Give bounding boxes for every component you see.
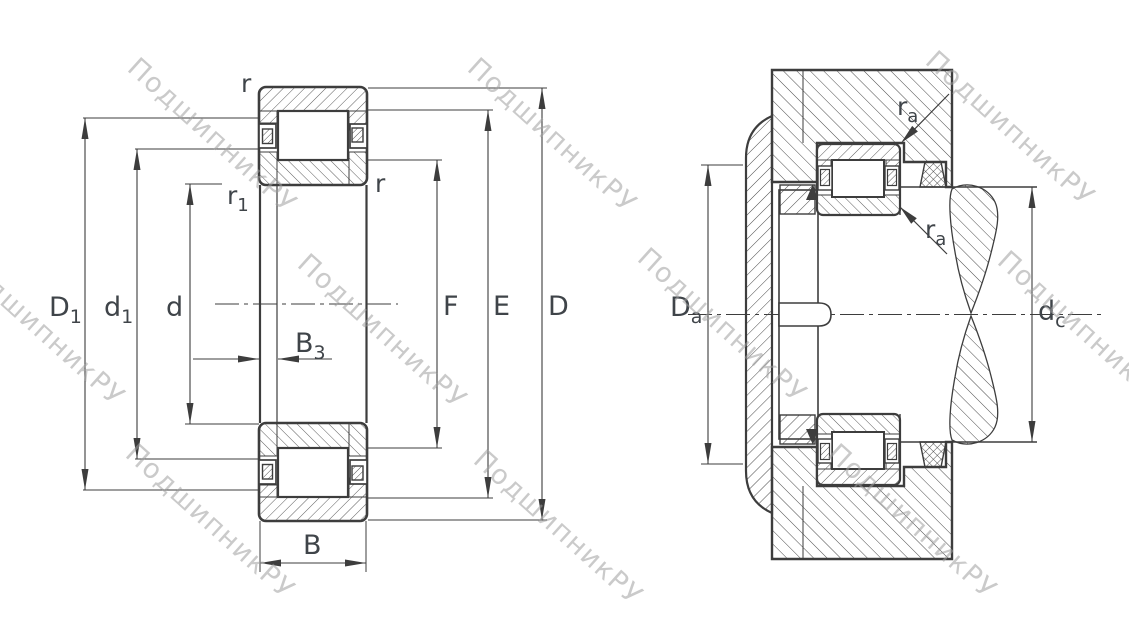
label-d1: d1	[104, 292, 133, 328]
bearing-lower-section	[259, 423, 367, 521]
seal-upper	[920, 162, 946, 187]
angle-ring-lower	[780, 415, 818, 445]
label-F: F	[443, 291, 459, 322]
locating-pin	[779, 303, 831, 326]
cage-lower-right	[350, 460, 367, 484]
mounted-bearing-lower	[817, 414, 900, 485]
label-dc: dc	[1038, 296, 1066, 332]
shaft-end-plate	[779, 190, 831, 439]
seal-lower	[920, 442, 946, 467]
bearing-drawing-page: r r1 r D1 d1 d B3 B F E D Da ra ra dc По…	[0, 0, 1129, 632]
roller-upper	[278, 111, 348, 160]
roller-lower	[832, 432, 884, 469]
roller-upper	[832, 160, 884, 197]
label-r1: r1	[227, 181, 249, 216]
label-Da: Da	[670, 292, 702, 328]
cage-upper-left	[818, 166, 832, 190]
label-E: E	[493, 291, 510, 322]
cage-lower-left	[818, 439, 832, 463]
cage-lower-right	[885, 439, 899, 463]
end-cap	[746, 116, 772, 513]
roller-lower	[278, 448, 348, 497]
label-B: B	[303, 530, 322, 561]
shaft-break-section-upper	[950, 185, 998, 313]
label-r-top: r	[241, 69, 252, 98]
technical-drawing-canvas: r r1 r D1 d1 d B3 B F E D Da ra ra dc	[0, 0, 1129, 632]
angle-ring-upper	[780, 184, 818, 214]
label-r-inner: r	[375, 169, 386, 198]
cage-upper-left	[259, 124, 276, 148]
label-D: D	[548, 291, 569, 322]
cage-upper-right	[350, 124, 367, 148]
left-view-bearing-section	[82, 87, 548, 572]
shaft-break-section-lower	[950, 316, 998, 444]
label-D1: D1	[49, 292, 82, 328]
cage-upper-right	[885, 166, 899, 190]
cage-lower-left	[259, 460, 276, 484]
bearing-upper-section	[259, 87, 367, 185]
label-d: d	[166, 292, 183, 323]
mounted-bearing-upper	[817, 144, 900, 215]
label-ra-mid: ra	[925, 215, 946, 250]
label-B3: B3	[295, 328, 326, 364]
